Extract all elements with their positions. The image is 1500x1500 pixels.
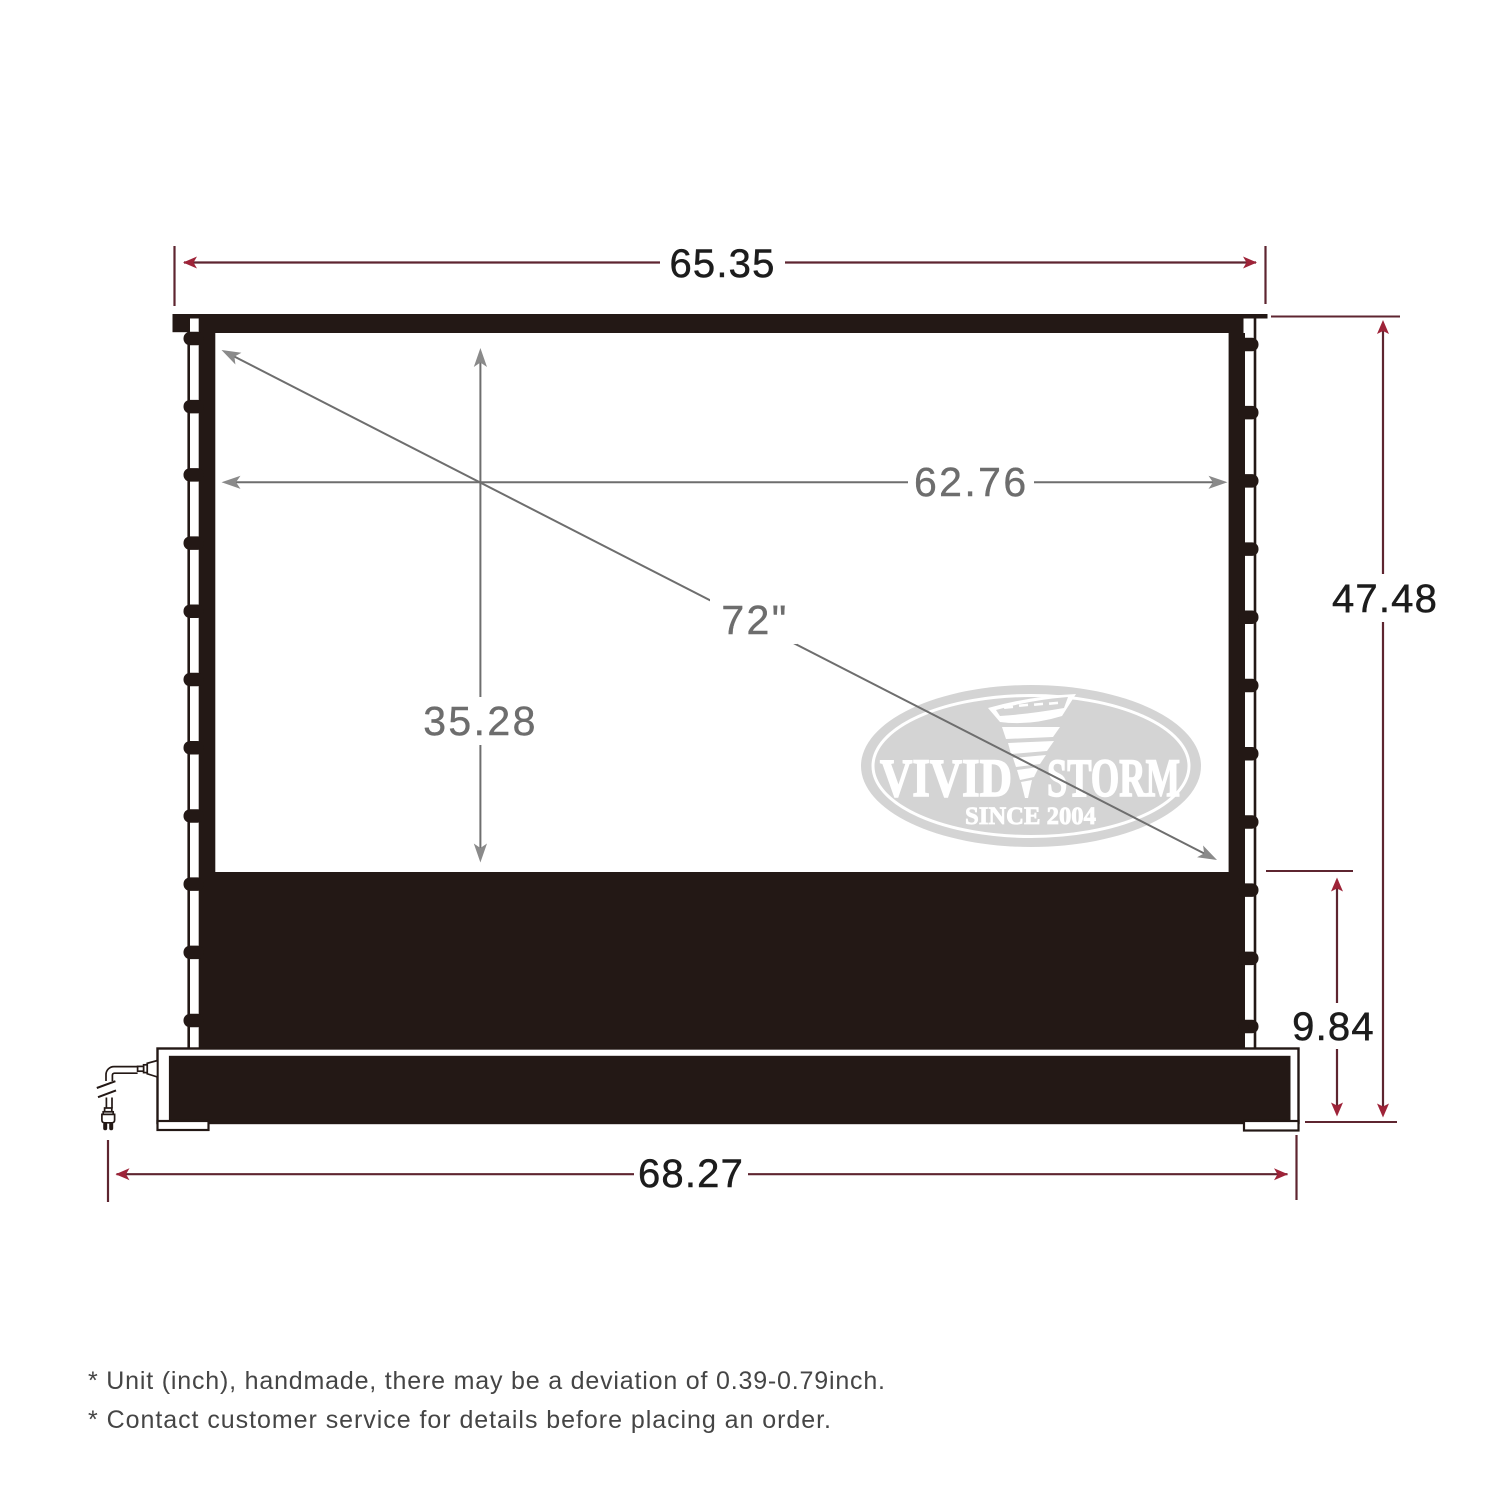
svg-text:SINCE 2004: SINCE 2004 <box>965 803 1096 830</box>
svg-text:65.35: 65.35 <box>669 242 775 286</box>
svg-text:62.76: 62.76 <box>914 459 1029 505</box>
svg-text:STORM: STORM <box>1047 748 1180 808</box>
svg-text:68.27: 68.27 <box>638 1152 744 1196</box>
svg-text:47.48: 47.48 <box>1332 577 1438 621</box>
svg-text:* Contact customer service for: * Contact customer service for details b… <box>88 1406 831 1434</box>
svg-text:* Unit (inch), handmade, there: * Unit (inch), handmade, there may be a … <box>88 1367 885 1395</box>
svg-text:9.84: 9.84 <box>1292 1005 1375 1049</box>
svg-text:72": 72" <box>721 597 788 643</box>
svg-text:35.28: 35.28 <box>423 698 538 744</box>
svg-text:VIVID: VIVID <box>880 748 1012 808</box>
